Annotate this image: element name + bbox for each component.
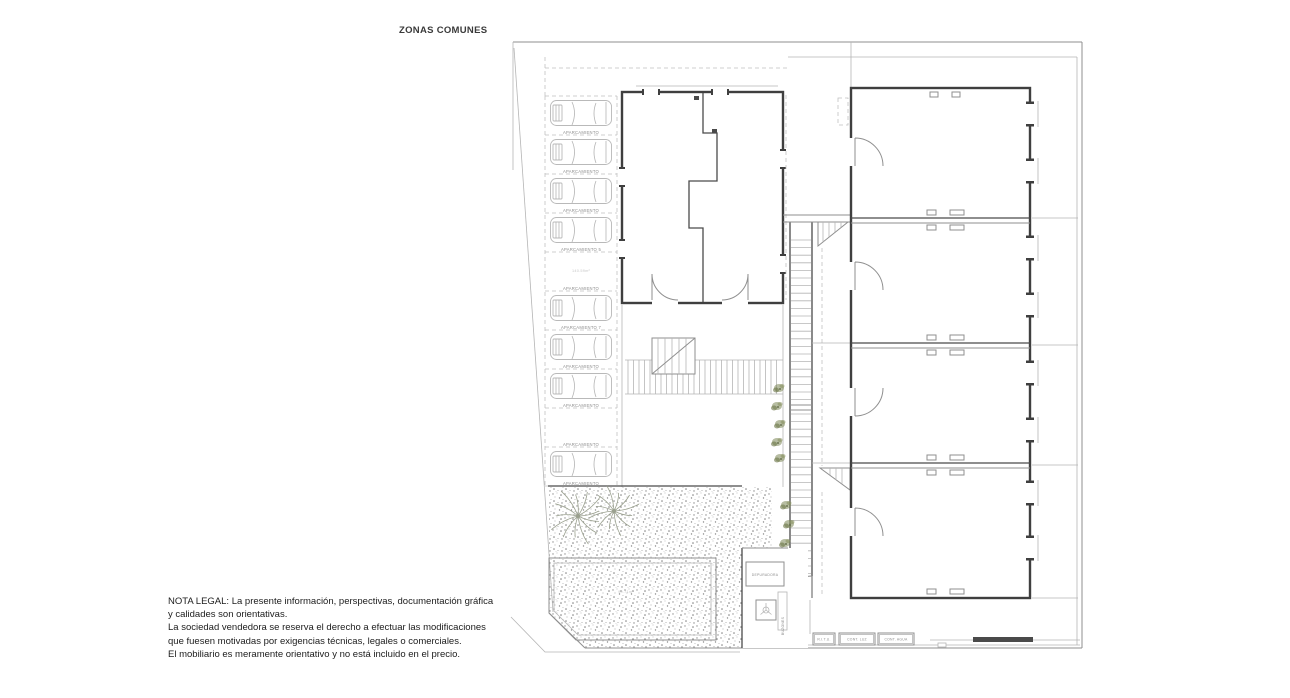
car-top-view-icon [551, 101, 612, 126]
legal-line: La sociedad vendedora se reserva el dere… [168, 621, 493, 634]
car-top-view-icon [551, 374, 612, 399]
legal-line: NOTA LEGAL: La presente información, per… [168, 595, 493, 608]
shrub-icon [774, 420, 786, 429]
car-top-view-icon [551, 140, 612, 165]
side-yard-lines [1032, 218, 1078, 598]
utility-meter-label: R.I.T.U. [817, 638, 830, 642]
parking-stall-label: APARCAMIENTO [563, 208, 600, 213]
window-opening [1026, 158, 1038, 184]
parking-stall: APARCAMIENTO [545, 447, 617, 486]
right-building [848, 88, 1078, 598]
parking-stall: APARCAMIENTO [545, 369, 617, 408]
floor-plan-page: ZONAS COMUNES [0, 0, 1290, 698]
car-top-view-icon [551, 452, 612, 477]
car-top-view-icon [551, 296, 612, 321]
parking-stall: APARCAMIENTO [545, 135, 617, 174]
shower-icon [756, 600, 776, 620]
legal-line: El mobiliario es meramente orientativo y… [168, 648, 493, 661]
pool-area-label: 90.71m² [618, 590, 634, 594]
stair-treads [791, 240, 811, 574]
parking-stall-label: APARCAMIENTO 5 [561, 247, 602, 252]
entrance-gate [930, 637, 1080, 647]
window-opening [1026, 101, 1038, 127]
shrub-icon [779, 539, 791, 548]
parking-stall-label: APARCAMIENTO [563, 403, 600, 408]
parking-stall-label: APARCAMIENTO [563, 130, 600, 135]
stair-landing-hatch [820, 468, 850, 490]
parking-stall: APARCAMIENTO [545, 174, 617, 213]
car-top-view-icon [551, 335, 612, 360]
depuradora-label: DEPURADORA [752, 573, 779, 577]
parking-zone: APARCAMIENTOAPARCAMIENTOAPARCAMIENTOAPAR… [545, 96, 617, 486]
parking-stall-label: APARCAMIENTO 7 [561, 325, 602, 330]
buzones-label: BUZONES [781, 616, 785, 635]
window-opening [1026, 235, 1038, 261]
pergola-slats [628, 360, 777, 394]
utility-meter-label: CONT. LUZ [847, 638, 867, 642]
shrub-icon [771, 438, 783, 447]
window-opening [712, 89, 728, 95]
parking-stall-label: APARCAMIENTO [563, 364, 600, 369]
shrub-icon [774, 454, 786, 463]
parking-area-note: 140.59m² [572, 269, 591, 273]
utility-meter-box: CONT. LUZ [839, 633, 875, 645]
window-opening [1026, 360, 1038, 386]
utility-meter-box: R.I.T.U. [813, 633, 835, 645]
parking-stall: APARCAMIENTO [545, 408, 617, 447]
site-plan-drawing: APARCAMIENTOAPARCAMIENTOAPARCAMIENTOAPAR… [0, 0, 1290, 698]
utility-boxes: R.I.T.U.CONT. LUZCONT. AGUA [813, 633, 914, 645]
parking-stalls: APARCAMIENTOAPARCAMIENTOAPARCAMIENTOAPAR… [545, 96, 617, 486]
stair-corridor [783, 42, 851, 634]
parking-stall-label: APARCAMIENTO [563, 286, 600, 291]
parking-stall: APARCAMIENTO [545, 96, 617, 135]
window-opening [1026, 292, 1038, 318]
car-top-view-icon [551, 179, 612, 204]
shrub-icon [771, 402, 783, 411]
window-opening [1026, 480, 1038, 506]
stair-landing-hatch [818, 222, 848, 246]
legal-line: que fuesen motivadas por exigencias técn… [168, 635, 493, 648]
window-opening [643, 89, 659, 95]
parking-stall: APARCAMIENTO 5 [545, 213, 617, 252]
central-building [619, 86, 786, 306]
utility-meter-label: CONT. AGUA [884, 638, 908, 642]
parking-stall: APARCAMIENTO [545, 330, 617, 369]
service-area: DEPURADORA BUZONES [742, 548, 808, 648]
window-opening [1026, 417, 1038, 443]
utility-meter-box: CONT. AGUA [878, 633, 914, 645]
legal-line: y calidades son orientativas. [168, 608, 493, 621]
parking-stall-label: APARCAMIENTO [563, 481, 600, 486]
legal-note: NOTA LEGAL: La presente información, per… [168, 595, 493, 661]
shrub-icon [783, 520, 795, 529]
car-top-view-icon [551, 218, 612, 243]
window-opening [1026, 535, 1038, 561]
parking-stall-label: APARCAMIENTO [563, 442, 600, 447]
parking-stall-label: APARCAMIENTO [563, 169, 600, 174]
gravel-texture [549, 487, 772, 648]
small-stair [652, 338, 695, 374]
parking-stall: APARCAMIENTO 7 [545, 291, 617, 330]
